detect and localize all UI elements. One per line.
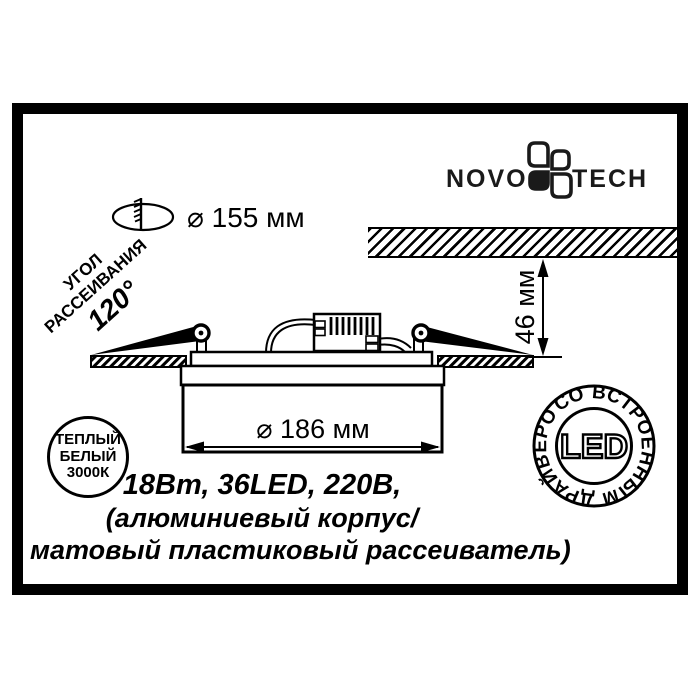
recess-depth-label: 46 мм: [510, 262, 538, 352]
spec-housing-line: (алюминиевый корпус/: [30, 502, 494, 534]
product-spec-sheet: NOVO TECH ⌀ 155 мм УГОЛ РАССЕИВАНИЯ 120°: [0, 0, 700, 700]
trim-band: [181, 366, 444, 385]
brand-logo-text-left: NOVO: [446, 165, 528, 194]
product-specs: 18Вт, 36LED, 220В, (алюминиевый корпус/ …: [30, 468, 494, 566]
outer-diameter-label: ⌀ 186 мм: [238, 414, 388, 445]
cutout-diameter-label: ⌀ 155 мм: [187, 201, 305, 234]
mounting-plate: [191, 352, 432, 366]
color-temp-line2: БЕЛЫЙ: [60, 449, 117, 466]
spring-clip-arm-left: [91, 326, 200, 355]
spec-diffuser-line: матовый пластиковый рассеиватель): [30, 534, 494, 566]
spec-power-line: 18Вт, 36LED, 220В,: [30, 468, 494, 502]
led-badge-center-text: LED: [560, 428, 628, 466]
trim-ring-right: [438, 356, 533, 367]
novotech-flower-icon: [521, 135, 575, 203]
color-temp-line1: ТЕПЛЫЙ: [55, 432, 121, 449]
led-driver-badge: СО ВСТРОЕННЫМ ДРАЙВЕРОМ LED: [528, 380, 660, 512]
brand-logo-text-right: TECH: [572, 165, 648, 194]
trim-ring-left: [91, 356, 186, 367]
